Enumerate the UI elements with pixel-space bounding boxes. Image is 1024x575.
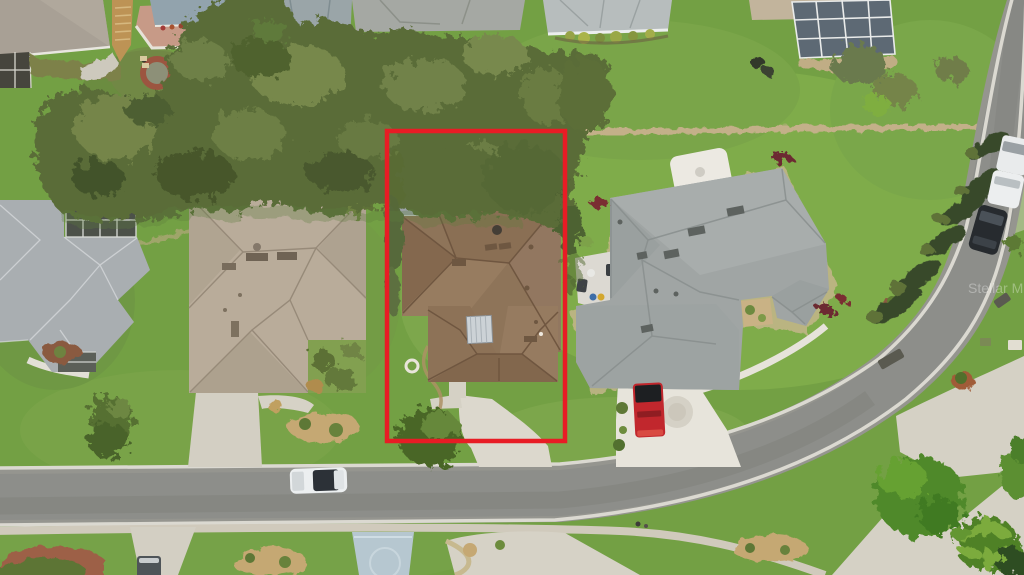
svg-text:Stellar MLS: Stellar MLS	[968, 280, 1024, 296]
